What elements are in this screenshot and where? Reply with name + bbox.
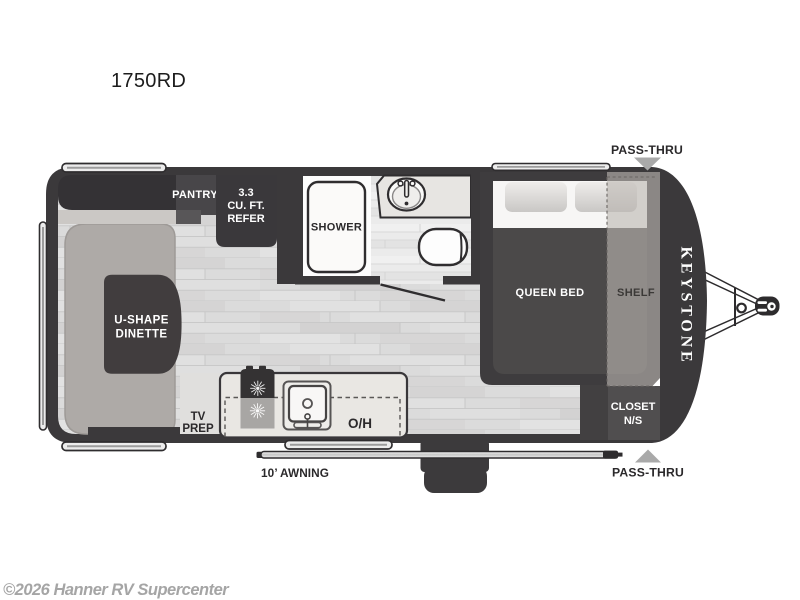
svg-text:QUEEN BED: QUEEN BED: [516, 287, 585, 299]
svg-text:REFER: REFER: [227, 213, 264, 225]
svg-text:CU. FT.: CU. FT.: [227, 200, 264, 212]
svg-text:DINETTE: DINETTE: [116, 329, 168, 341]
svg-text:O/H: O/H: [348, 416, 372, 431]
svg-text:PREP: PREP: [182, 423, 214, 435]
svg-text:U-SHAPE: U-SHAPE: [114, 315, 169, 327]
svg-text:1750RD: 1750RD: [111, 70, 186, 92]
svg-text:PASS-THRU: PASS-THRU: [612, 466, 684, 480]
svg-text:N/S: N/S: [624, 415, 642, 427]
svg-text:10’ AWNING: 10’ AWNING: [261, 466, 329, 480]
svg-text:©2026 Hanner RV Supercenter: ©2026 Hanner RV Supercenter: [3, 581, 230, 599]
svg-text:PASS-THRU: PASS-THRU: [611, 143, 683, 157]
svg-text:TV: TV: [191, 411, 206, 423]
svg-text:CLOSET: CLOSET: [611, 401, 656, 413]
svg-text:KEYSTONE: KEYSTONE: [677, 246, 694, 365]
svg-text:SHELF: SHELF: [617, 287, 655, 299]
svg-text:PANTRY: PANTRY: [172, 189, 218, 201]
svg-text:SHOWER: SHOWER: [311, 222, 362, 234]
svg-text:3.3: 3.3: [238, 187, 253, 199]
